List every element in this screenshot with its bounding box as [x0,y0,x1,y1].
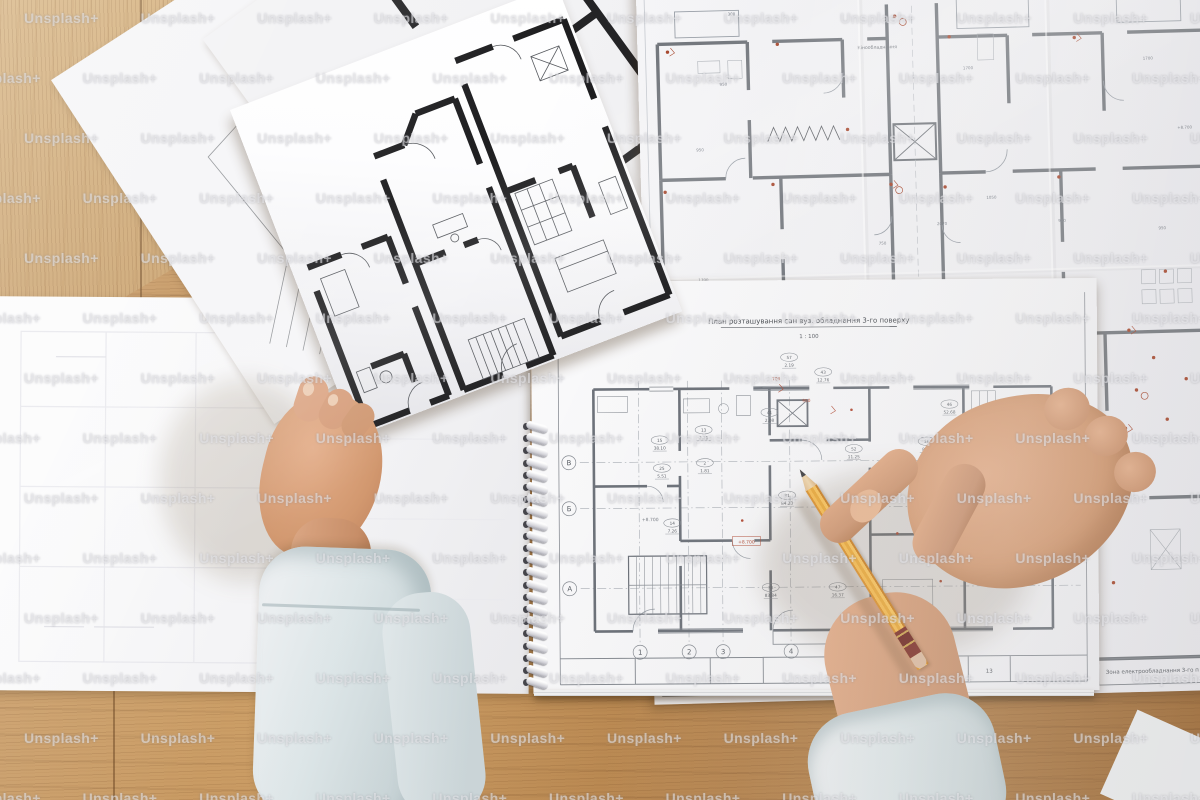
plan-title: План розташування сан вуз. обладнання 3-… [708,316,909,325]
binding-wire [525,445,548,459]
svg-text:46: 46 [947,402,953,407]
spiral-binding [500,422,552,694]
svg-text:1700: 1700 [1143,55,1154,60]
comb-symbol [767,126,839,142]
spiral-loop [500,434,552,444]
svg-text:25: 25 [659,466,665,471]
spiral-loop [500,654,552,664]
spiral-loop [500,544,552,554]
svg-text:750: 750 [879,240,887,245]
spiral-loop [500,642,552,652]
svg-text:950: 950 [696,147,704,152]
spiral-loop [500,495,552,505]
svg-text:950: 950 [1158,225,1166,230]
elevation-mark-gray: +8.700 [642,517,659,523]
svg-text:950: 950 [719,82,727,87]
binding-wire [525,567,548,581]
svg-text:4: 4 [789,648,794,656]
elevation-mark-red: +8.700 [738,539,755,545]
svg-text:2.08: 2.08 [765,418,775,423]
svg-text:300: 300 [728,11,736,16]
svg-text:1700: 1700 [963,65,974,70]
svg-text:14: 14 [670,521,676,526]
blueprint-titleblock-text: Зона електрообладнання 3-го п [1106,667,1200,675]
spiral-loop [500,605,552,615]
spiral-loop [500,459,552,469]
svg-text:1.81: 1.81 [700,468,710,473]
binding-wire [525,506,548,520]
svg-text:700: 700 [772,376,781,382]
svg-text:3: 3 [721,648,726,656]
svg-text:5.51: 5.51 [657,474,667,479]
svg-text:2.19: 2.19 [784,363,794,368]
wood-plank-seam [113,688,115,800]
svg-text:38.10: 38.10 [654,446,666,451]
svg-text:В: В [566,459,571,467]
svg-text:52.68: 52.68 [943,410,955,415]
spiral-loop [500,678,552,688]
svg-text:2: 2 [687,648,692,656]
binding-wire [525,481,548,495]
svg-text:2070: 2070 [937,221,948,226]
spiral-loop [500,629,552,639]
binding-wire [525,591,548,605]
binding-wire [525,420,548,434]
binding-wire [525,676,548,690]
svg-text:43: 43 [821,370,827,375]
svg-text:А: А [567,585,572,593]
svg-text:15: 15 [657,438,663,443]
binding-wire [525,518,548,532]
svg-text:57: 57 [786,355,792,360]
binding-wire [525,542,548,556]
spiral-loop [500,556,552,566]
svg-text:2: 2 [703,461,706,466]
svg-text:1: 1 [638,649,643,657]
binding-wire [525,603,548,617]
binding-wire [525,640,548,654]
plan-scale: 1 : 100 [799,334,819,340]
spiral-loop [500,520,552,530]
svg-text:52: 52 [851,447,857,452]
titleblock-sheet-number: 13 [986,669,994,675]
spiral-loop [500,568,552,578]
svg-text:11.25: 11.25 [848,454,860,459]
spiral-loop [500,483,552,493]
spiral-loop [500,422,552,432]
binding-wire [525,457,548,471]
svg-text:950: 950 [802,398,811,404]
binding-wire [525,628,548,642]
binding-wire [525,664,548,678]
spiral-loop [500,471,552,481]
album-page-stack-edge [534,690,1094,696]
svg-text:900: 900 [1058,218,1066,223]
binding-wire [525,530,548,544]
svg-text:2.21: 2.21 [699,435,709,440]
spiral-loop [500,617,552,627]
svg-text:13: 13 [701,428,707,433]
binding-wire [525,469,548,483]
binding-wire [525,579,548,593]
spiral-loop [500,666,552,676]
svg-text:Б: Б [567,505,572,513]
svg-text:12.76: 12.76 [817,377,829,382]
svg-text:31: 31 [784,493,790,498]
spiral-loop [500,446,552,456]
binding-wire [525,652,548,666]
svg-text:+8.700: +8.700 [1177,124,1192,129]
spiral-loop [500,532,552,542]
spiral-loop [500,593,552,603]
spiral-loop [500,581,552,591]
svg-text:1050: 1050 [986,195,997,200]
svg-text:41: 41 [767,410,773,415]
photo-architect-desk: Wi-Fi роутерКінообладнанняНакладні розет… [0,0,1200,800]
svg-text:7.26: 7.26 [668,528,678,533]
spiral-loop [500,507,552,517]
